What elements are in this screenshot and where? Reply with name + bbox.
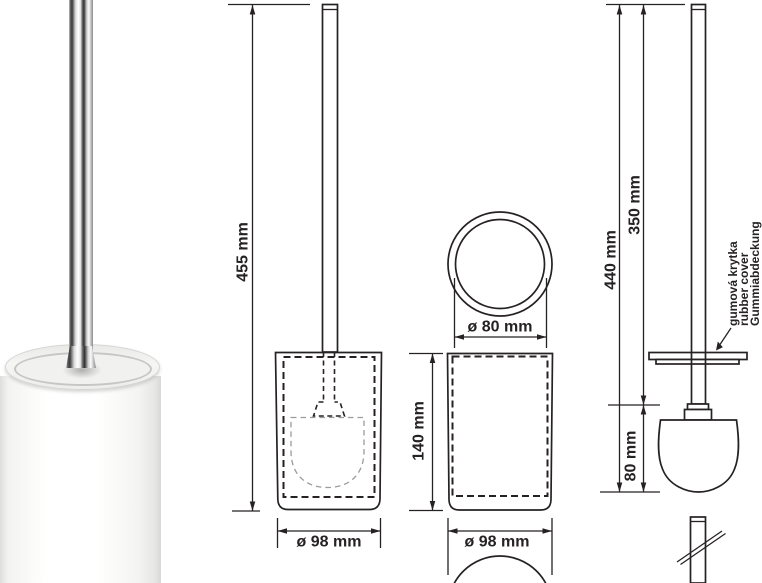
holder-bottom-view xyxy=(448,556,552,583)
dimension-label-height-455: 455 mm xyxy=(235,222,252,282)
view-brush-detail: 440 mm 350 mm 80 mm gumová krytka rubber… xyxy=(600,5,762,493)
dimension-label-height-140: 140 mm xyxy=(411,401,428,461)
dimension-label-diameter-80: ø 80 mm xyxy=(468,319,533,336)
dimension-label-height-440: 440 mm xyxy=(603,230,620,290)
note-de: Gummiabdeckung xyxy=(748,221,762,326)
brush-handle-outline xyxy=(692,5,706,405)
view-holder-front: 140 mm ø 98 mm xyxy=(409,354,553,583)
rubber-cover xyxy=(649,353,747,360)
technical-drawing: 455 mm ø 98 mm ø 80 mm 140 mm xyxy=(0,0,762,583)
rubber-cover-note: gumová krytka rubber cover Gummiabdeckun… xyxy=(726,221,762,326)
handle-outline xyxy=(323,5,338,353)
dimension-label-diameter-98-a: ø 98 mm xyxy=(297,534,362,551)
dimension-label-height-350: 350 mm xyxy=(627,175,644,235)
dimension-label-height-80: 80 mm xyxy=(623,431,640,482)
view-spare-handle xyxy=(677,517,726,583)
view-front-full: 455 mm ø 98 mm xyxy=(228,5,382,551)
break-line xyxy=(677,531,726,565)
page: 455 mm ø 98 mm ø 80 mm 140 mm xyxy=(0,0,762,583)
view-top: ø 80 mm xyxy=(448,212,552,348)
dimension-label-diameter-98-b: ø 98 mm xyxy=(465,534,530,551)
brush-head-outline xyxy=(658,420,738,492)
